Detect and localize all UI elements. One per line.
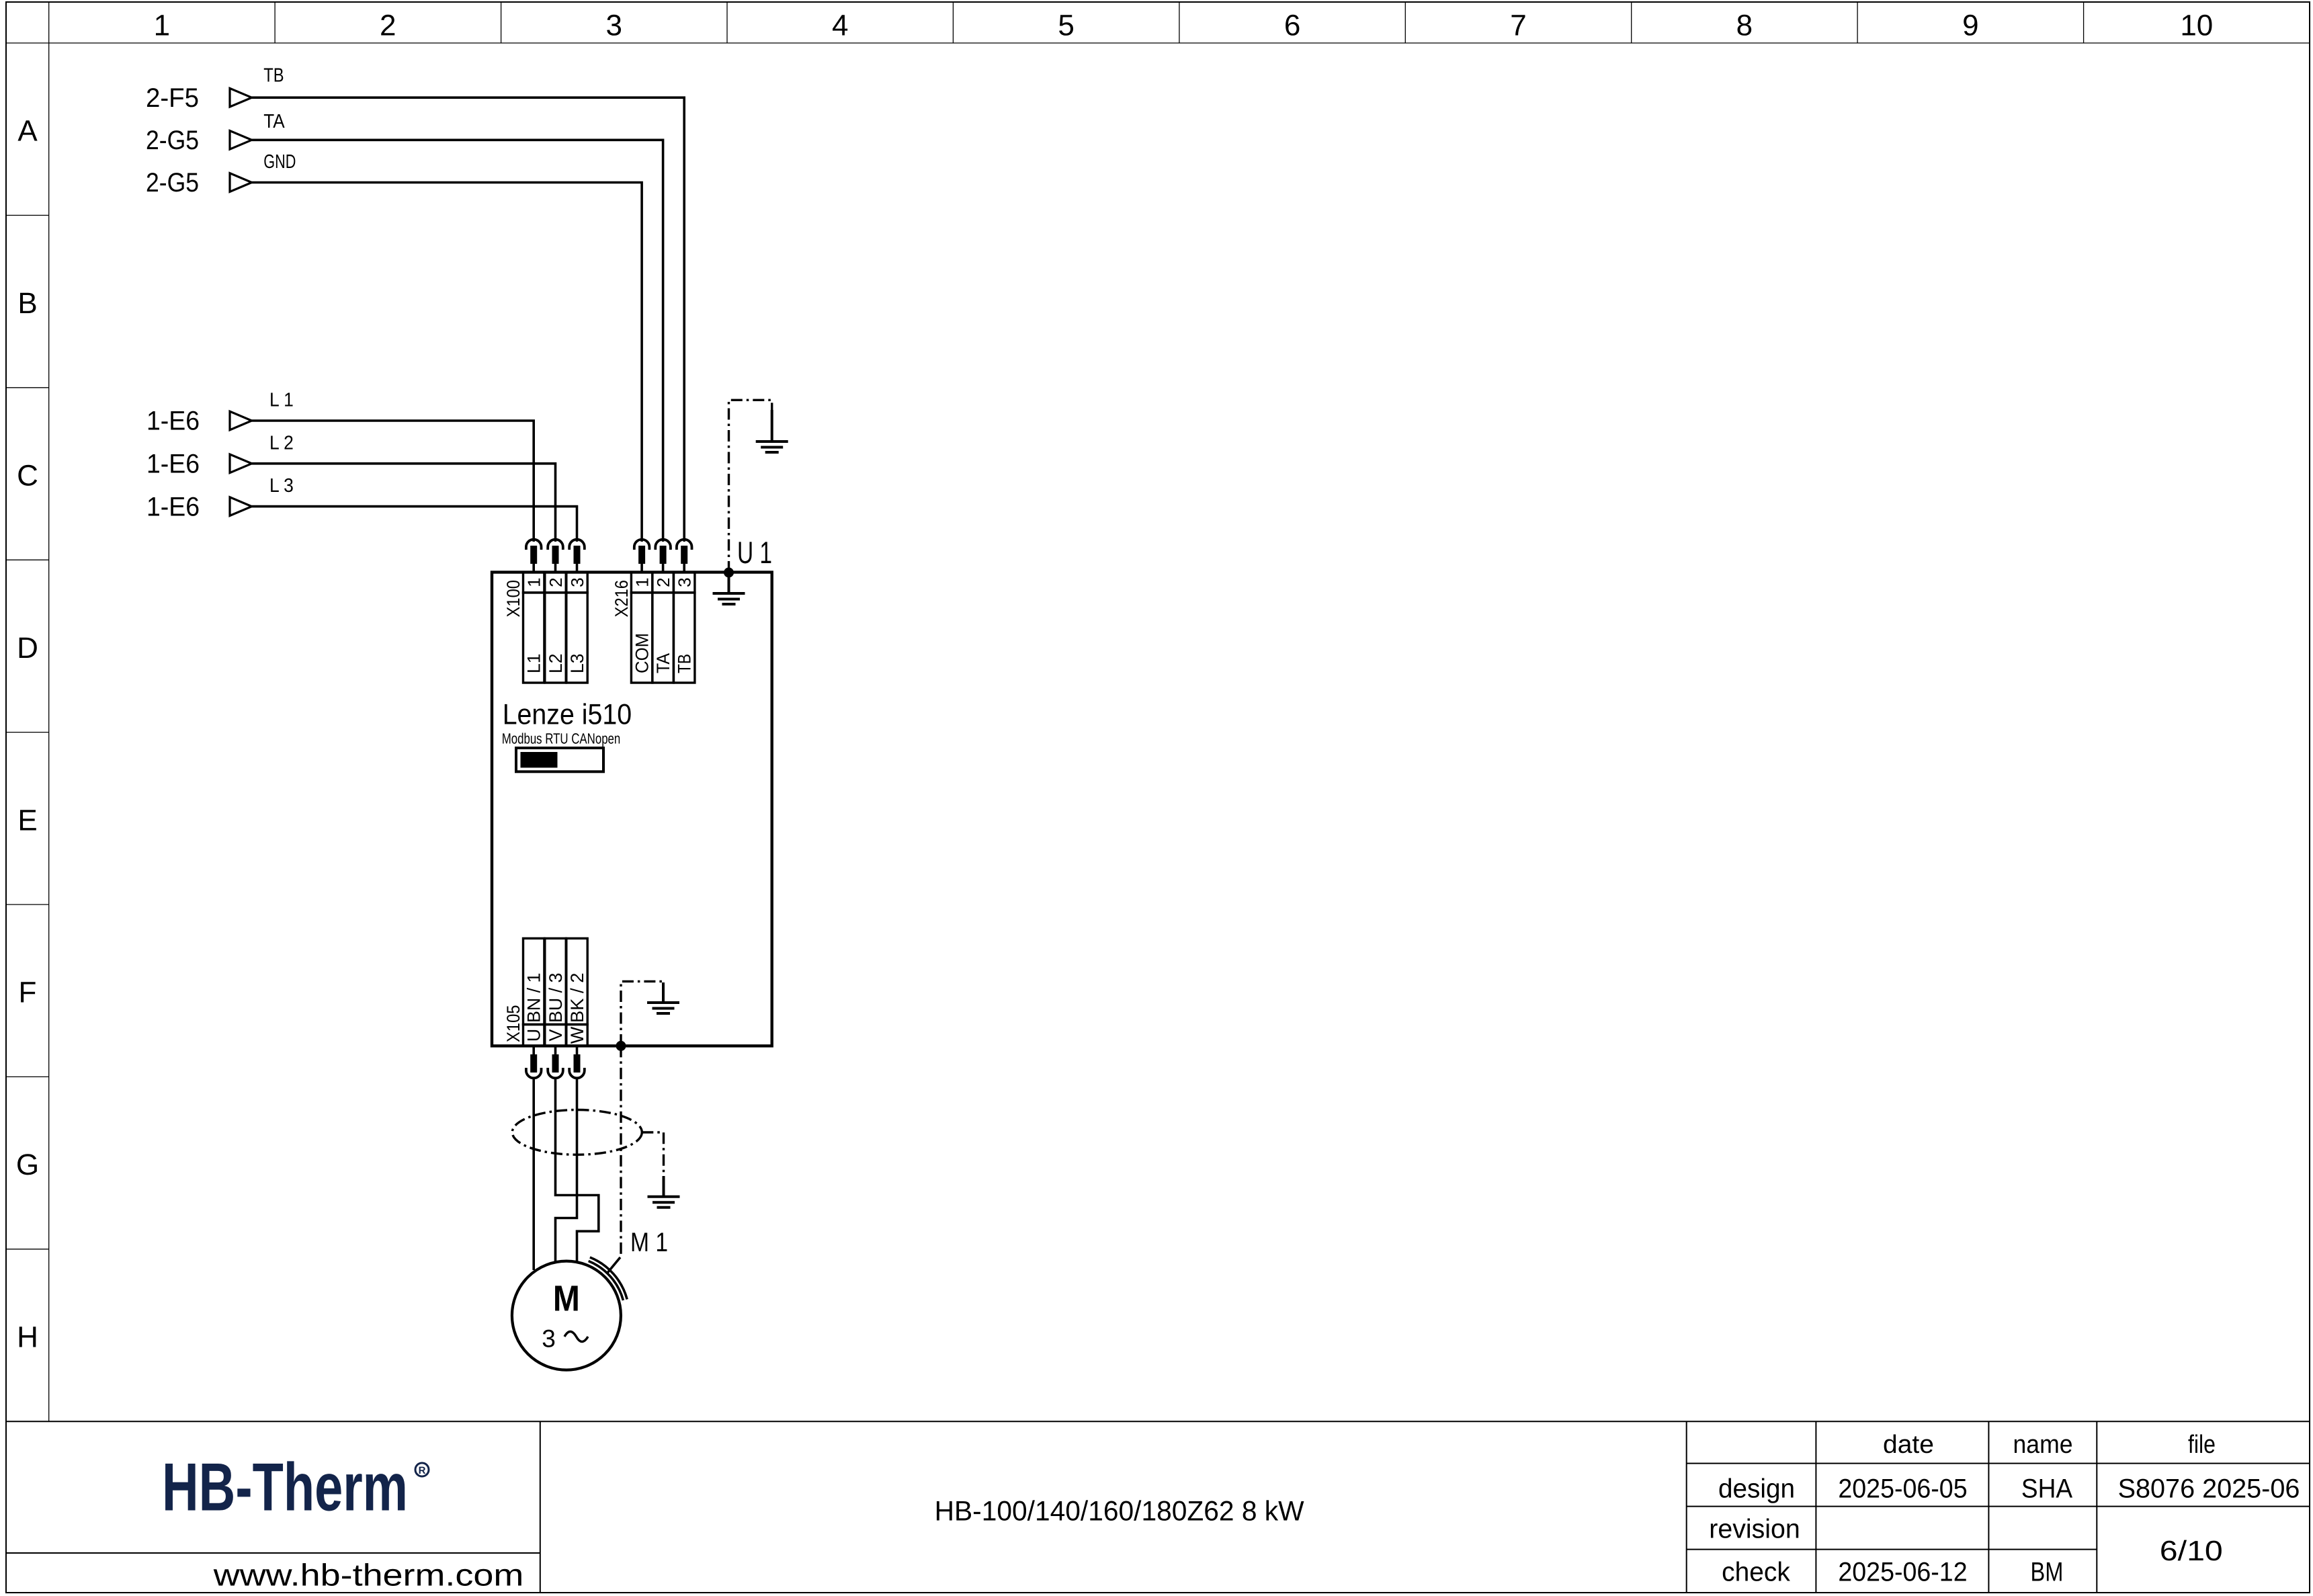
svg-text:2025-06-12: 2025-06-12 (1838, 1557, 1967, 1587)
svg-text:HB-100/140/160/180Z62 8 kW: HB-100/140/160/180Z62 8 kW (935, 1495, 1305, 1526)
svg-text:8: 8 (1736, 9, 1753, 42)
svg-text:X105: X105 (503, 1005, 523, 1043)
svg-text:X100: X100 (503, 580, 523, 618)
svg-text:name: name (2013, 1431, 2073, 1459)
svg-text:R: R (419, 1465, 426, 1476)
svg-text:design: design (1718, 1474, 1795, 1504)
svg-text:Lenze i510: Lenze i510 (503, 699, 632, 731)
svg-text:2-F5: 2-F5 (146, 83, 199, 113)
svg-text:BU / 3: BU / 3 (546, 973, 566, 1023)
svg-text:BM: BM (2031, 1557, 2064, 1587)
svg-text:10: 10 (2180, 9, 2213, 42)
svg-text:BN / 1: BN / 1 (524, 973, 544, 1023)
svg-text:2-G5: 2-G5 (146, 126, 199, 155)
svg-text:E: E (17, 804, 37, 837)
svg-text:1-E6: 1-E6 (146, 492, 200, 521)
svg-text:2: 2 (380, 9, 396, 42)
svg-text:6: 6 (1284, 9, 1300, 42)
svg-text:L1: L1 (524, 654, 544, 673)
svg-text:L3: L3 (567, 654, 587, 673)
svg-text:4: 4 (832, 9, 848, 42)
svg-text:COM: COM (632, 633, 653, 673)
svg-text:TA: TA (653, 653, 673, 673)
svg-text:3: 3 (675, 577, 695, 587)
svg-text:revision: revision (1709, 1514, 1800, 1544)
svg-text:1-E6: 1-E6 (146, 407, 200, 436)
svg-text:2025-06-05: 2025-06-05 (1838, 1474, 1967, 1504)
svg-text:M 1: M 1 (630, 1228, 668, 1257)
svg-text:L2: L2 (546, 654, 566, 673)
svg-text:TB: TB (675, 654, 695, 673)
svg-text:2-G5: 2-G5 (146, 168, 199, 198)
svg-text:F: F (19, 976, 37, 1009)
svg-text:3: 3 (567, 577, 587, 587)
svg-text:HB-Therm: HB-Therm (162, 1450, 408, 1525)
svg-text:TB: TB (263, 65, 284, 87)
svg-text:A: A (17, 115, 38, 148)
svg-text:S8076 2025-06: S8076 2025-06 (2118, 1474, 2300, 1504)
svg-text:U 1: U 1 (737, 535, 772, 570)
svg-text:Modbus RTU CANopen: Modbus RTU CANopen (502, 730, 621, 747)
svg-text:GND: GND (263, 151, 296, 173)
svg-text:1: 1 (154, 9, 170, 42)
svg-text:C: C (17, 460, 38, 493)
svg-text:3: 3 (606, 9, 622, 42)
svg-text:L 2: L 2 (269, 432, 294, 454)
svg-text:BK / 2: BK / 2 (567, 973, 587, 1023)
svg-text:H: H (17, 1321, 38, 1354)
svg-text:SHA: SHA (2021, 1474, 2072, 1504)
svg-text:1: 1 (632, 577, 653, 587)
svg-text:check: check (1722, 1557, 1791, 1587)
svg-text:date: date (1883, 1431, 1934, 1459)
svg-text:www.hb-therm.com: www.hb-therm.com (213, 1557, 524, 1592)
svg-text:2: 2 (653, 577, 673, 587)
svg-text:B: B (17, 287, 37, 320)
svg-text:1: 1 (524, 577, 544, 587)
svg-text:6/10: 6/10 (2160, 1535, 2223, 1566)
svg-text:7: 7 (1510, 9, 1526, 42)
svg-text:W: W (567, 1026, 587, 1044)
svg-text:L 1: L 1 (269, 390, 294, 411)
svg-text:1-E6: 1-E6 (146, 450, 200, 479)
svg-text:2: 2 (546, 577, 566, 587)
svg-text:M: M (553, 1279, 580, 1319)
svg-text:D: D (17, 632, 38, 665)
svg-text:5: 5 (1058, 9, 1074, 42)
svg-text:TA: TA (263, 111, 285, 132)
svg-text:V: V (546, 1029, 566, 1041)
svg-text:U: U (524, 1029, 544, 1042)
svg-text:L 3: L 3 (269, 475, 294, 497)
svg-text:G: G (16, 1148, 39, 1181)
svg-text:9: 9 (1962, 9, 1978, 42)
svg-text:3: 3 (542, 1325, 556, 1352)
svg-text:X216: X216 (612, 580, 632, 618)
svg-text:file: file (2188, 1431, 2216, 1459)
